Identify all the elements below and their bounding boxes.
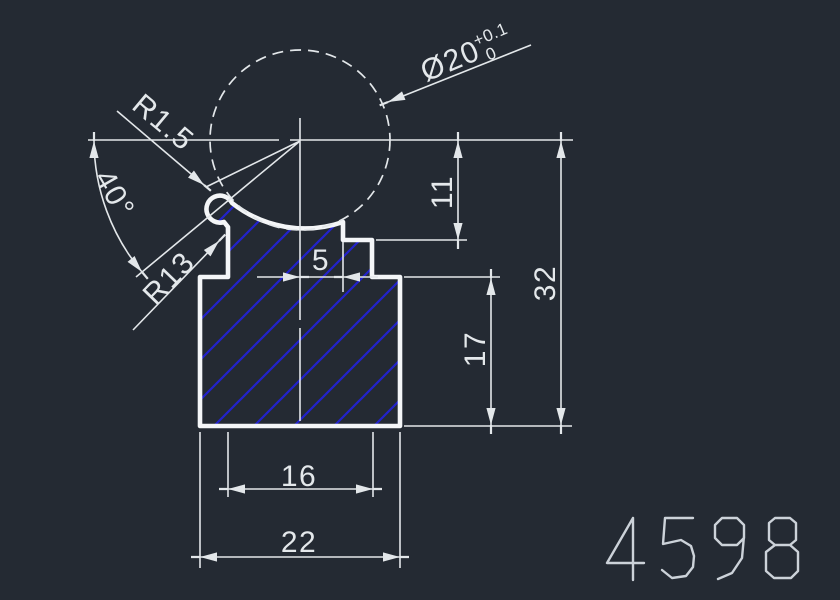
cad-canvas: Ø20 +0.1 0 R1.5 40° R13 5 11 32 17 16 22	[0, 0, 840, 600]
engineering-drawing: Ø20 +0.1 0 R1.5 40° R13 5 11 32 17 16 22	[0, 0, 840, 600]
dim-boss-16: 16	[281, 460, 317, 493]
dim-body-22: 22	[281, 526, 317, 559]
dim-total-32: 32	[529, 265, 562, 301]
dim-offset-5: 5	[312, 244, 330, 277]
dim-step-11: 11	[426, 175, 459, 209]
dim-body-17: 17	[459, 331, 492, 367]
